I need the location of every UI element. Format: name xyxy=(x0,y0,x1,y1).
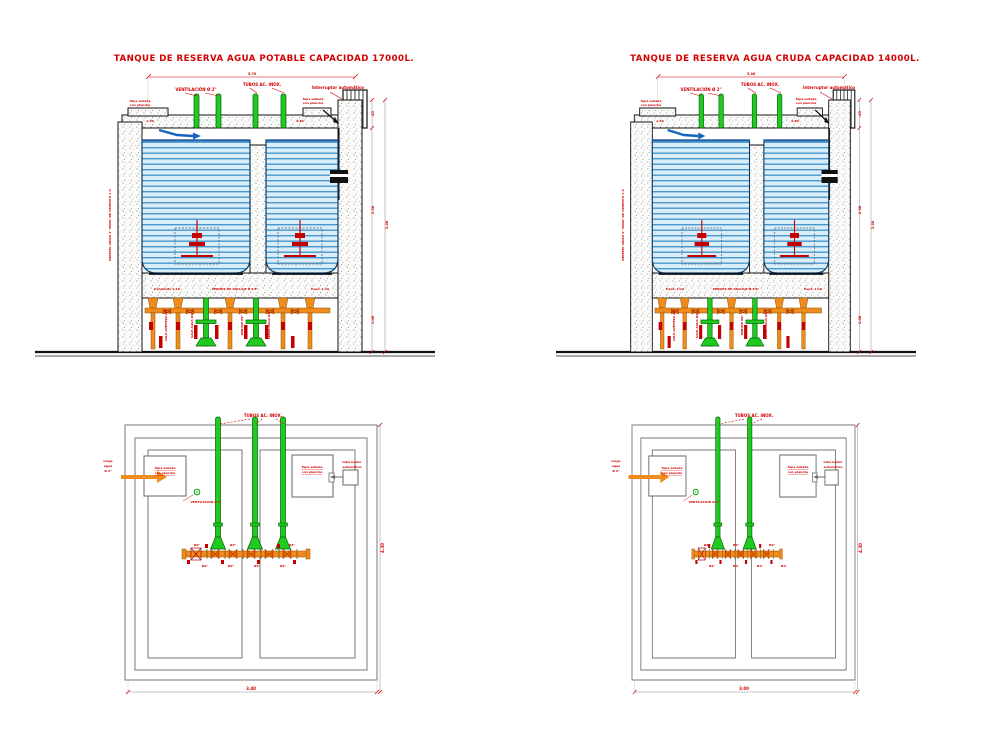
right-plan-inlet-l1: Llega xyxy=(611,459,620,463)
right-slab-dim-left: 1.50 xyxy=(656,119,663,123)
right-plan-dim-bottom: 3.00 xyxy=(739,686,749,691)
left-plan-switch-l2: automático xyxy=(342,465,361,469)
right-section-vent-label: VENTILACIÓN Ø 2" xyxy=(680,87,721,92)
right-plan-cover-left-l1: Tapa sellada xyxy=(662,466,683,470)
left-pipe-label-3: LLEGA AGUA Ø2" xyxy=(266,310,271,339)
left-plan-inlet-l2: agua xyxy=(104,464,112,468)
left-plan-manifold-label-6: Ø2" xyxy=(280,563,287,568)
right-plan-dim-side: 4.30 xyxy=(858,543,863,553)
right-section-tubes-label: TUBOS AC. INOX. xyxy=(741,82,780,87)
right-plan-switch-l2: automático xyxy=(823,465,842,469)
cad-sheet: TANQUE DE RESERVA AGUA POTABLE CAPACIDAD… xyxy=(0,0,1000,751)
left-wall-label: IMPERM. MURO 2" MORT. DE CEMENTO 1:3 xyxy=(108,189,112,261)
right-section-switch-label: Interruptor automático xyxy=(803,85,855,90)
right-plan-cover-right-l2: con plancha xyxy=(788,470,808,474)
left-pipe-label-1: SALE AGUA Ø2" xyxy=(189,311,194,338)
right-plan-manifold-label-1: Ø2" xyxy=(733,542,740,547)
right-pipe-label-3: LLEGA AGUA Ø2" xyxy=(763,310,768,339)
right-pipe-label-1: SALE AGUA Ø2" xyxy=(694,311,699,338)
right-plan-cover-left-l2: con plancha xyxy=(662,471,682,475)
left-plan-manifold-label-1: Ø2" xyxy=(230,542,237,547)
left-plan-manifold-label-3: Ø2" xyxy=(202,563,209,568)
right-dim-right-total: 3.40 xyxy=(871,220,875,229)
drawing-svg: TANQUE DE RESERVA AGUA POTABLE CAPACIDAD… xyxy=(0,0,1000,751)
left-plan-drawing: TUBOS AC. INOX. Tapa sellada con plancha… xyxy=(103,413,385,694)
right-plan-switch-l1: Interruptor xyxy=(824,460,843,464)
right-dim-right-mid: 2.30 xyxy=(858,205,862,214)
left-plan-dim-side: 4.30 xyxy=(380,543,385,553)
right-plan-cover-right-l1: Tapa sellada xyxy=(788,465,809,469)
left-section-drawing: TANQUE DE RESERVA AGUA POTABLE CAPACIDAD… xyxy=(35,54,435,356)
left-dim-right-total: 3.40 xyxy=(385,220,389,229)
right-cover-right-l2: con plancha xyxy=(796,101,816,105)
right-plan-inlet-l3: Ø 2" xyxy=(612,468,620,473)
left-plan-manifold-label-0: Ø2" xyxy=(194,542,201,547)
right-dim-right-top: .45 xyxy=(858,110,862,117)
left-section-dim-top: 3.70 xyxy=(248,72,257,76)
left-plan-manifold-label-4: Ø2" xyxy=(228,563,235,568)
left-plan-switch-l1: Interruptor xyxy=(343,460,362,464)
left-plan-geometry xyxy=(121,417,382,694)
right-plan-vent-label: VENTILACIÓN Ø 2" xyxy=(689,499,720,504)
right-slope-right-label: Pend. 1:10 xyxy=(804,287,822,291)
right-section-dim-top: 3.40 xyxy=(747,72,756,76)
right-slab-dim-right: 0.80 xyxy=(791,119,798,123)
left-section-vent-label: VENTILACIÓN Ø 2" xyxy=(175,87,216,92)
left-slab-dim-right: 0.80 xyxy=(296,119,303,123)
right-cover-left-l2: con plancha xyxy=(641,103,661,107)
left-plan-dim-bottom: 3.40 xyxy=(246,686,256,691)
right-pipe-label-2: REBOSE Ø2" xyxy=(739,314,744,335)
left-slope-left-label: Pendiente 1:10 xyxy=(154,287,180,291)
right-plan-drawing: TUBOS AC. INOX. Tapa sellada con plancha… xyxy=(611,413,863,694)
left-plan-tubes-label: TUBOS AC. INOX. xyxy=(244,413,283,418)
right-pipe-label-0: SALE LIMPIEZA Ø2" xyxy=(671,308,676,341)
right-plan-manifold-label-3: Ø2" xyxy=(709,563,716,568)
right-plan-tubes-label: TUBOS AC. INOX. xyxy=(735,413,774,418)
right-dim-right-bottom: 1.00 xyxy=(858,315,862,324)
right-plan-manifold-label-4: Ø2" xyxy=(733,563,740,568)
left-section-geometry xyxy=(35,74,435,356)
left-plan-cover-left-l1: Tapa sellada xyxy=(155,466,176,470)
left-pipe-label-2: REBOSE Ø2" xyxy=(239,314,244,335)
right-plan-inlet-l2: agua xyxy=(612,464,620,468)
right-plan-manifold-label-6: Ø2" xyxy=(781,563,788,568)
left-section-switch-label: Interruptor automático xyxy=(312,85,364,90)
right-section-drawing: TANQUE DE RESERVA AGUA CRUDA CAPACIDAD 1… xyxy=(556,54,920,356)
right-section-title: TANQUE DE RESERVA AGUA CRUDA CAPACIDAD 1… xyxy=(630,54,920,64)
right-plan-geometry xyxy=(628,417,859,694)
right-plan-manifold-label-2: Ø2" xyxy=(769,542,776,547)
right-slope-left-label: Pend. 1:10 xyxy=(666,287,684,291)
left-dim-right-top: .45 xyxy=(371,110,375,117)
left-plan-vent-label: VENTILACIÓN Ø 2" xyxy=(191,499,222,504)
left-section-title: TANQUE DE RESERVA AGUA POTABLE CAPACIDAD… xyxy=(114,54,414,64)
left-anchor-label: PERNOS DE ANCLAJE Ø 3/8" xyxy=(212,286,259,291)
left-plan-manifold-label-2: Ø2" xyxy=(289,542,296,547)
left-plan-inlet-l1: Llega xyxy=(103,459,112,463)
right-wall-label: IMPERM. MURO 2" MORT. DE CEMENTO 1:3 xyxy=(621,189,625,261)
right-plan-manifold-label-5: Ø2" xyxy=(757,563,764,568)
left-plan-leaders xyxy=(220,419,284,424)
right-anchor-label: PERNOS DE ANCLAJE Ø 3/8" xyxy=(713,286,760,291)
left-plan-manifold-label-5: Ø2" xyxy=(254,563,261,568)
left-slope-right-label: Pend. 1:10 xyxy=(311,287,329,291)
left-cover-left-l2: con plancha xyxy=(130,103,150,107)
right-section-geometry xyxy=(556,74,916,356)
left-plan-cover-right-l2: con plancha xyxy=(302,470,322,474)
left-section-tubes-label: TUBOS AC. INOX. xyxy=(243,82,282,87)
left-plan-cover-right-l1: Tapa sellada xyxy=(302,465,323,469)
left-dim-right-mid: 2.30 xyxy=(371,205,375,214)
left-slab-dim-left: 1.50 xyxy=(146,119,153,123)
left-plan-inlet-l3: Ø 2" xyxy=(104,468,112,473)
left-pipe-label-0: SALE LIMPIEZA Ø2" xyxy=(163,308,168,341)
left-cover-right-l2: con plancha xyxy=(303,101,323,105)
right-plan-leaders xyxy=(719,419,762,424)
left-plan-cover-left-l2: con plancha xyxy=(155,471,175,475)
right-plan-manifold-label-0: Ø2" xyxy=(704,542,711,547)
left-dim-right-bottom: 1.00 xyxy=(371,315,375,324)
